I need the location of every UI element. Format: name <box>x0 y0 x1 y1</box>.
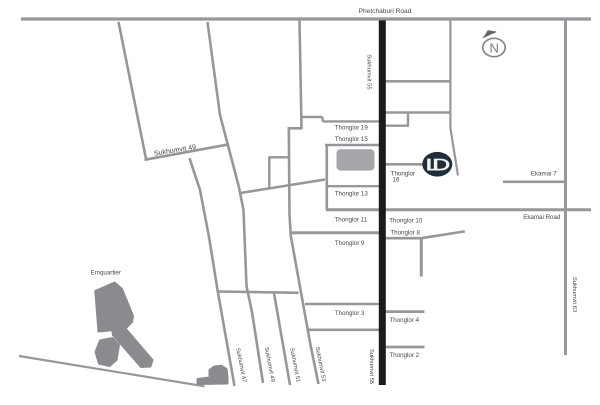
svg-text:Thonglor 10: Thonglor 10 <box>389 217 423 224</box>
svg-text:Phetchaburi Road: Phetchaburi Road <box>359 8 412 15</box>
svg-text:Thonglor 19: Thonglor 19 <box>335 125 369 132</box>
svg-text:16: 16 <box>393 176 400 183</box>
svg-text:Emquartier: Emquartier <box>91 269 121 276</box>
svg-text:Thonglor 2: Thonglor 2 <box>390 352 420 359</box>
svg-text:Thonglor 3: Thonglor 3 <box>335 310 365 317</box>
svg-text:Ekamai Road: Ekamai Road <box>523 214 561 221</box>
svg-text:N: N <box>490 41 499 56</box>
svg-text:Sukhumvit 55: Sukhumvit 55 <box>366 54 372 89</box>
svg-text:Thonglor 13: Thonglor 13 <box>335 191 369 198</box>
svg-text:Ekamai 7: Ekamai 7 <box>531 170 557 177</box>
svg-text:Thonglor 8: Thonglor 8 <box>390 229 420 236</box>
svg-text:Sukhumvit 55: Sukhumvit 55 <box>368 349 374 384</box>
svg-text:Thonglor 11: Thonglor 11 <box>335 217 368 224</box>
svg-text:Thonglor 9: Thonglor 9 <box>335 240 365 247</box>
svg-text:Sukhumvit 63: Sukhumvit 63 <box>571 277 577 312</box>
svg-text:Thonglor 4: Thonglor 4 <box>390 317 420 324</box>
svg-text:Thonglor 15: Thonglor 15 <box>335 136 369 143</box>
